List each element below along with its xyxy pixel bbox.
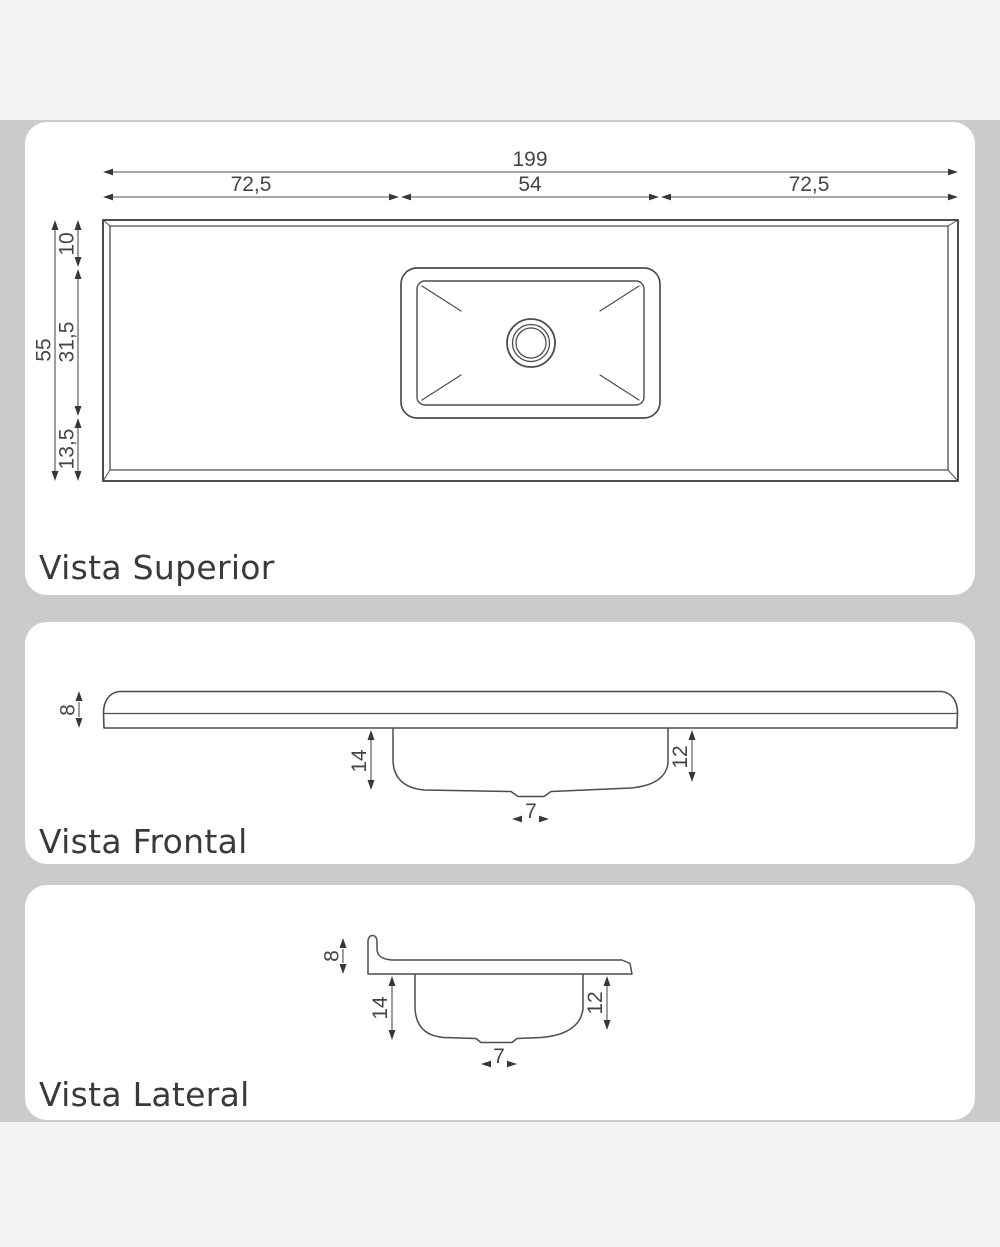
dim-label-total-width: 199 [512,148,547,171]
sink-basin-top-view [401,268,660,418]
panel-vista-frontal: 8 14 12 7 Vista Frontal [25,622,975,864]
dim-total-width: 199 [103,148,958,175]
view-title-lateral: Vista Lateral [39,1075,250,1114]
dim-thickness: 8 [57,691,83,728]
sink-bowl-front [393,728,668,797]
dim-left-bowl-depth: 14 [348,730,375,790]
view-title-frontal: Vista Frontal [39,822,248,861]
page-header-band [0,0,1000,120]
dim-drain-width: 7 [512,800,549,823]
drain-icon [507,319,555,367]
sink-bowl-side [415,974,583,1043]
dim-label-right-bowl-depth: 12 [584,991,607,1014]
dim-label-left-bowl-depth: 14 [369,996,392,1020]
countertop-side-view [368,936,632,1043]
dim-label-right-bowl-depth: 12 [669,745,692,768]
dim-depth-segments: 10 31,5 13,5 [56,220,82,481]
dim-label-bottom-offset: 13,5 [56,429,79,470]
dim-label-top-offset: 10 [56,232,79,255]
dim-label-total-depth: 55 [33,338,56,361]
dim-label-thickness: 8 [57,704,80,716]
dim-label-left-bowl-depth: 14 [348,749,371,773]
dim-label-drain-width: 7 [493,1045,505,1068]
view-title-superior: Vista Superior [39,548,275,587]
panel-vista-superior: 199 72,5 54 72,5 55 [25,122,975,595]
countertop-top-view [103,220,958,481]
top-view-drawing: 199 72,5 54 72,5 55 [25,122,975,595]
dim-label-basin-depth: 31,5 [56,322,79,363]
dim-drain-width: 7 [481,1045,517,1068]
dim-right-bowl-depth: 12 [584,976,611,1030]
dim-label-drain-width: 7 [525,800,537,823]
dim-label-thickness: 8 [321,950,344,962]
dim-right-bowl-depth: 12 [669,730,696,782]
dim-thickness: 8 [321,938,347,974]
dim-left-bowl-depth: 14 [369,976,396,1040]
dim-label-left-segment: 72,5 [231,173,272,196]
panel-vista-lateral: 8 14 12 7 Vista Lateral [25,885,975,1120]
dim-label-right-segment: 72,5 [789,173,830,196]
page-footer-band [0,1122,1000,1247]
countertop-front-view [104,692,958,797]
basin-corner-lines [422,286,639,400]
dim-width-segments: 72,5 54 72,5 [103,173,958,200]
dim-label-center-segment: 54 [518,173,542,196]
